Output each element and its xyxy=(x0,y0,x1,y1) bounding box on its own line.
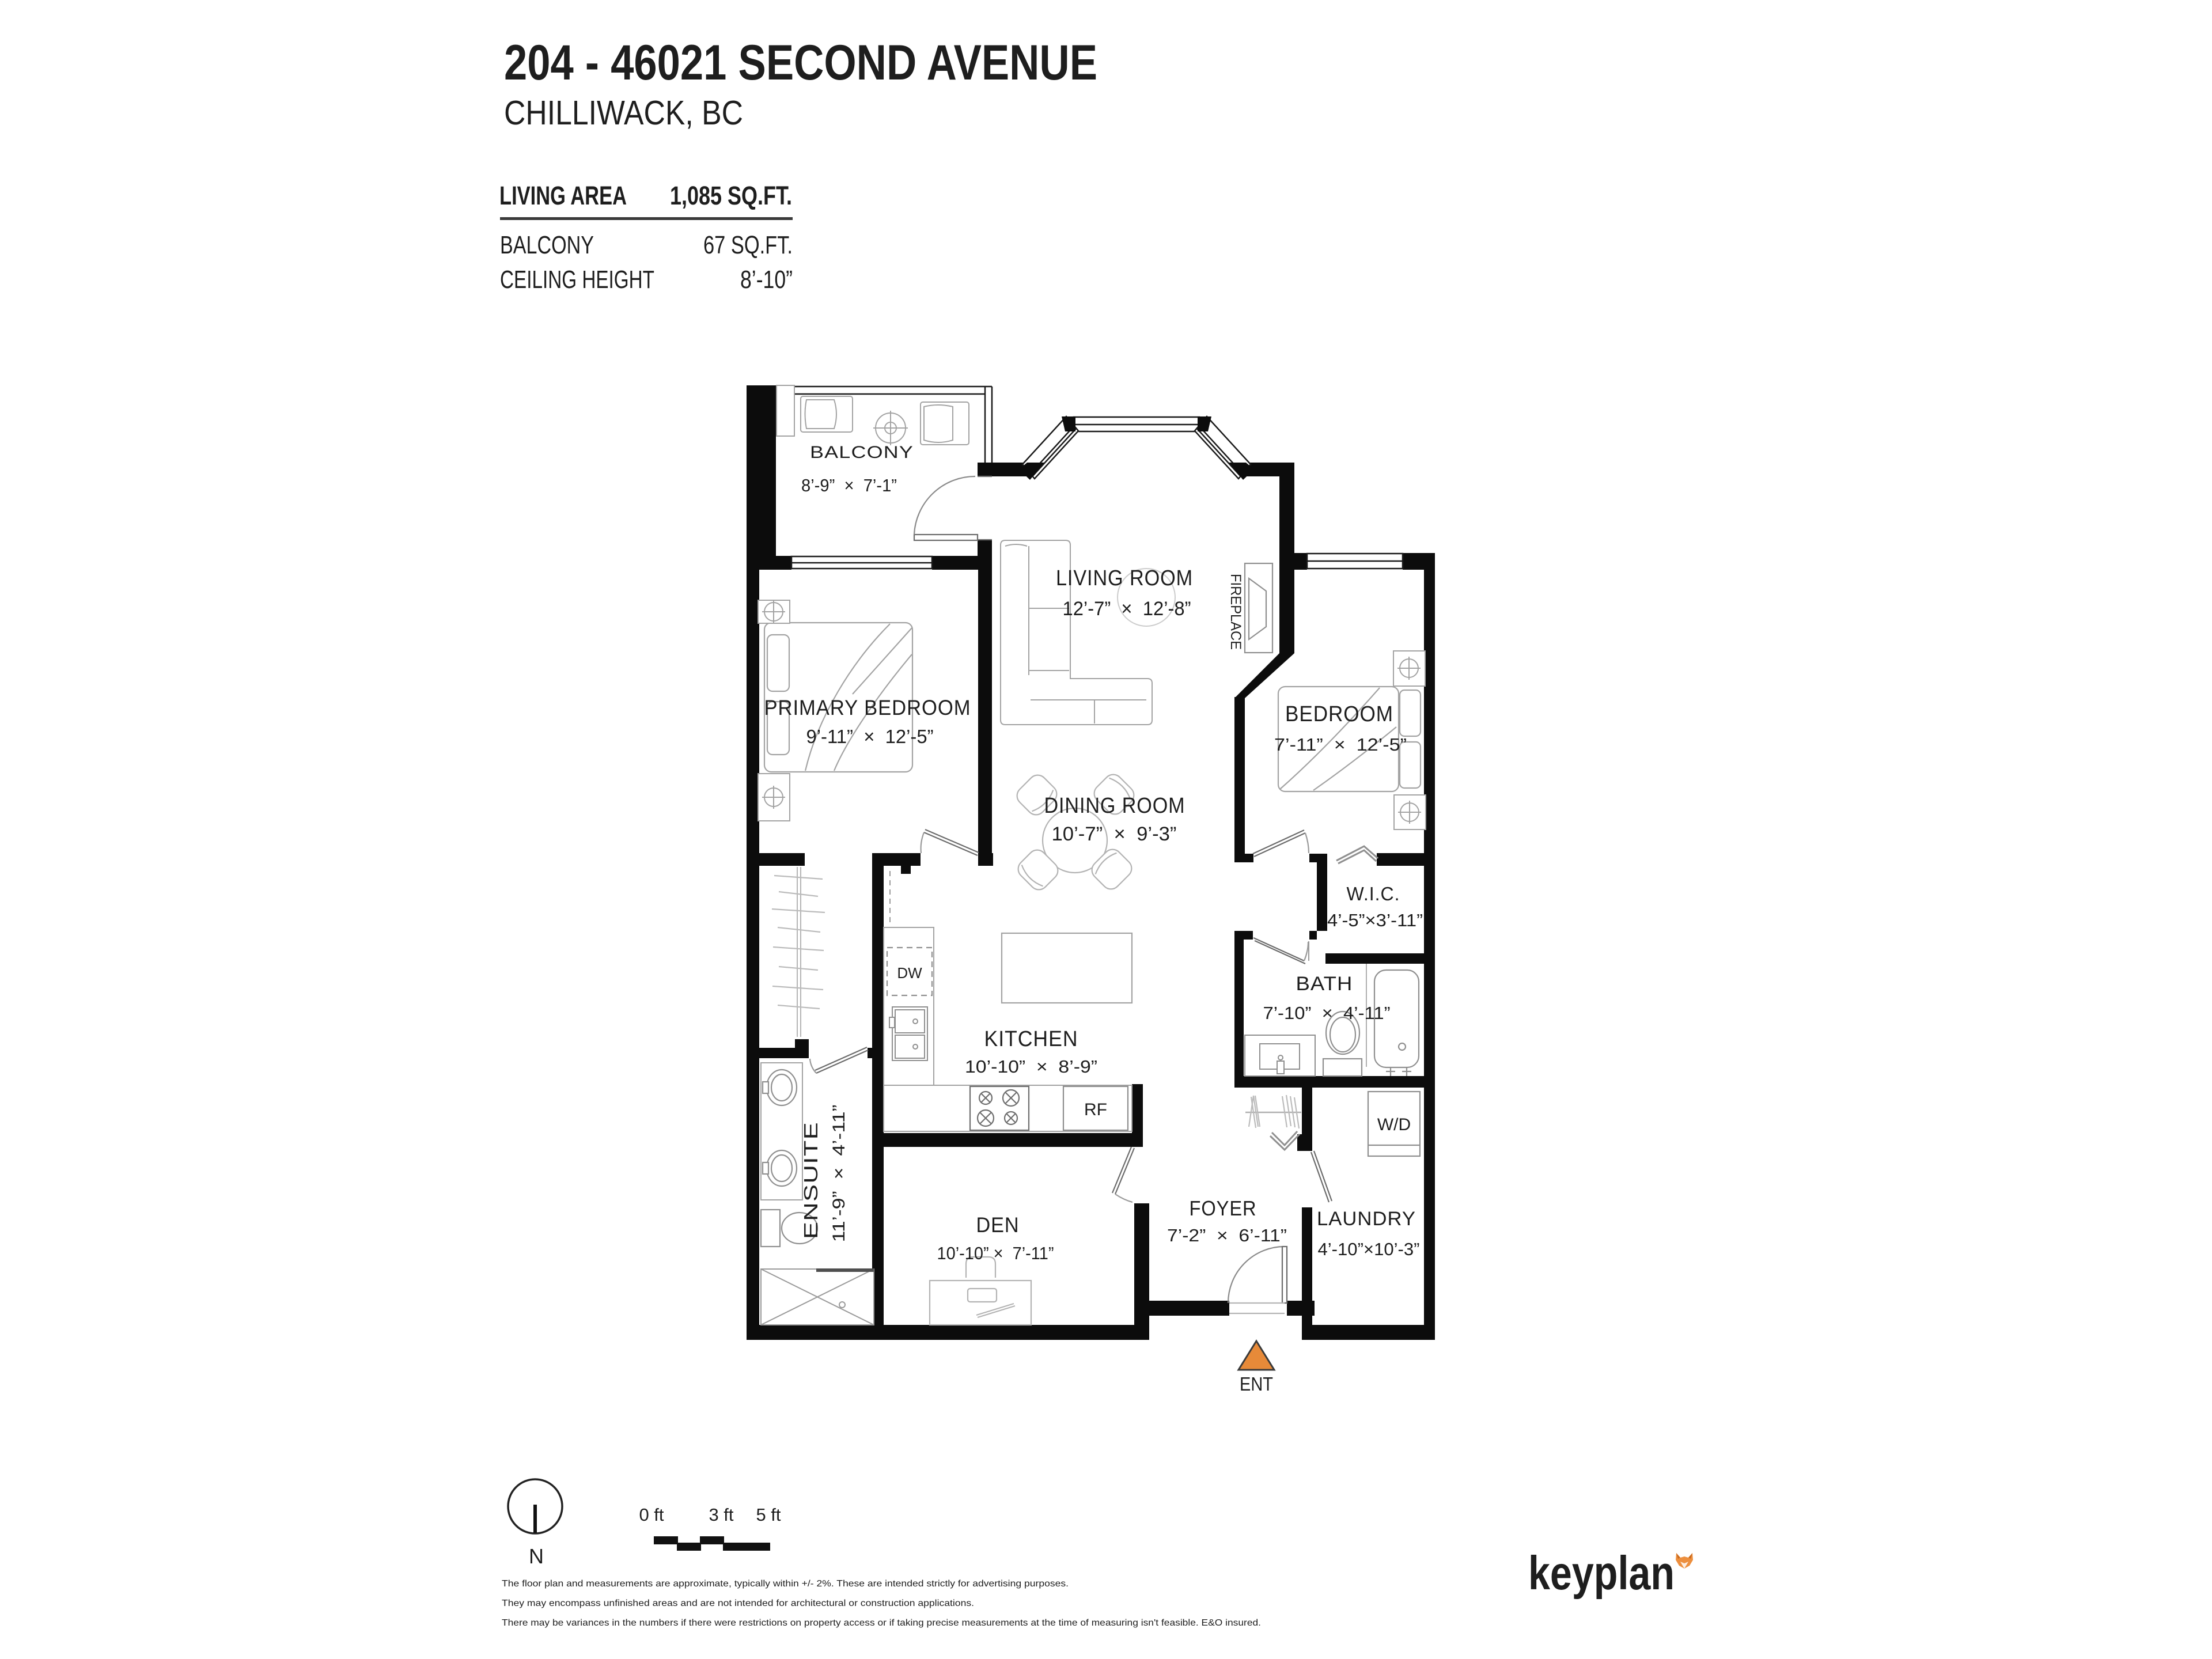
svg-text:4’-10”×10’-3”: 4’-10”×10’-3” xyxy=(1318,1239,1420,1259)
svg-text:4’-5”×3’-11”: 4’-5”×3’-11” xyxy=(1327,910,1423,930)
svg-text:8’-10”: 8’-10” xyxy=(740,266,793,294)
svg-text:KITCHEN: KITCHEN xyxy=(984,1027,1078,1051)
svg-text:1,085 SQ.FT.: 1,085 SQ.FT. xyxy=(670,181,792,210)
svg-text:LIVING AREA: LIVING AREA xyxy=(499,181,627,210)
svg-text:keyplan: keyplan xyxy=(1528,1546,1675,1600)
svg-text:LAUNDRY: LAUNDRY xyxy=(1317,1208,1416,1230)
svg-text:7’-2” × 6’-11”: 7’-2” × 6’-11” xyxy=(1167,1225,1287,1245)
svg-text:10’-10” × 8’-9”: 10’-10” × 8’-9” xyxy=(965,1056,1097,1077)
svg-text:CEILING HEIGHT: CEILING HEIGHT xyxy=(500,266,654,294)
svg-text:BALCONY: BALCONY xyxy=(810,443,914,462)
svg-text:10’-10” × 7’-11”: 10’-10” × 7’-11” xyxy=(937,1243,1054,1263)
svg-text:There may be variances in the: There may be variances in the numbers if… xyxy=(502,1618,1261,1628)
svg-text:8’-9” × 7’-1”: 8’-9” × 7’-1” xyxy=(801,475,897,495)
svg-text:3 ft: 3 ft xyxy=(709,1505,733,1525)
svg-text:FOYER: FOYER xyxy=(1190,1196,1257,1220)
svg-text:The floor plan and measurement: The floor plan and measurements are appr… xyxy=(502,1579,1069,1589)
svg-text:12’-7” × 12’-8”: 12’-7” × 12’-8” xyxy=(1063,598,1191,620)
svg-text:7’-11” × 12’-5”: 7’-11” × 12’-5” xyxy=(1274,734,1407,755)
svg-text:0 ft: 0 ft xyxy=(639,1505,664,1525)
svg-text:204 - 46021 SECOND AVENUE: 204 - 46021 SECOND AVENUE xyxy=(504,35,1097,90)
svg-text:67 SQ.FT.: 67 SQ.FT. xyxy=(703,231,793,259)
svg-text:RF: RF xyxy=(1084,1100,1107,1119)
svg-text:CHILLIWACK, BC: CHILLIWACK, BC xyxy=(504,94,743,132)
svg-text:9’-11” × 12’-5”: 9’-11” × 12’-5” xyxy=(806,726,934,747)
svg-text:BEDROOM: BEDROOM xyxy=(1285,702,1393,726)
svg-text:PRIMARY BEDROOM: PRIMARY BEDROOM xyxy=(764,696,971,719)
svg-text:ENSUITE: ENSUITE xyxy=(800,1122,821,1239)
svg-text:FIREPLACE: FIREPLACE xyxy=(1228,574,1244,650)
svg-text:BALCONY: BALCONY xyxy=(500,231,594,259)
svg-text:ENT: ENT xyxy=(1240,1373,1273,1395)
svg-text:BATH: BATH xyxy=(1296,973,1353,995)
svg-text:7’-10” × 4’-11”: 7’-10” × 4’-11” xyxy=(1263,1003,1391,1023)
svg-text:W/D: W/D xyxy=(1377,1115,1411,1134)
svg-text:DEN: DEN xyxy=(976,1213,1020,1237)
svg-text:DW: DW xyxy=(897,964,922,982)
svg-text:LIVING ROOM: LIVING ROOM xyxy=(1056,566,1193,590)
svg-text:11’-9” × 4’-11”: 11’-9” × 4’-11” xyxy=(829,1105,849,1243)
svg-text:5 ft: 5 ft xyxy=(756,1505,781,1525)
svg-text:N: N xyxy=(529,1544,544,1568)
svg-text:They may encompass unfinished: They may encompass unfinished areas and … xyxy=(502,1599,974,1608)
svg-text:DINING ROOM: DINING ROOM xyxy=(1044,794,1185,818)
svg-text:W.I.C.: W.I.C. xyxy=(1347,883,1400,904)
svg-text:10’-7” × 9’-3”: 10’-7” × 9’-3” xyxy=(1052,823,1177,845)
